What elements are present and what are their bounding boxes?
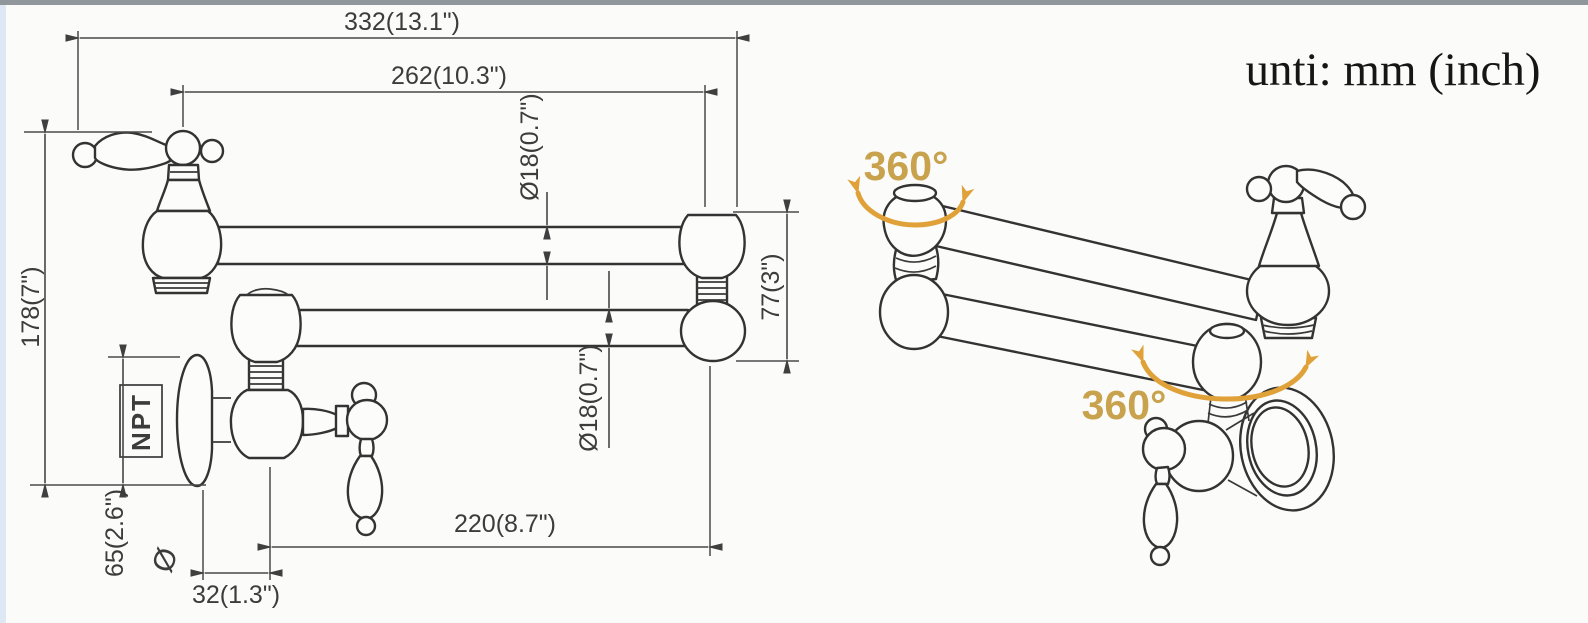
lever-tip — [357, 517, 375, 535]
pot-filler-dimension-diagram: NPT — [0, 0, 1588, 623]
perspective-spout — [1247, 166, 1365, 338]
diagram-canvas: NPT — [0, 0, 1588, 623]
perspective-joint-lower-ball — [880, 275, 948, 349]
dim-overall-length: 332(13.1") — [344, 8, 460, 36]
joint-upper-ball — [679, 215, 744, 278]
upper-arm — [218, 227, 688, 264]
unit-note: unti: mm (inch) — [1245, 44, 1540, 96]
perspective-lower-arm — [927, 293, 1217, 391]
dim-flange-diameter: 65(2.6") — [101, 489, 129, 577]
lever-cone — [303, 409, 337, 435]
perspective-fold-joint — [880, 185, 948, 349]
flange-diameter-symbol: Ø — [146, 544, 185, 577]
rotation-label-upper: 360° — [864, 143, 949, 189]
flange-disc — [177, 355, 212, 486]
flange-pipe — [212, 398, 231, 442]
perspective-view: 360° 360° unti: mm (inch) — [858, 44, 1541, 565]
spout-assembly — [73, 131, 223, 293]
dim-wall-offset: 32(1.3") — [192, 581, 280, 609]
spout-upper-body — [157, 180, 210, 211]
rotation-label-lower: 360° — [1082, 382, 1167, 428]
perspective-lever-pivot — [1143, 428, 1185, 470]
wall-joint-waist — [249, 360, 283, 390]
lower-arm — [296, 310, 688, 346]
spout-aerator — [153, 278, 210, 293]
dim-lower-arm-diameter: Ø18(0.7") — [575, 344, 603, 452]
dim-spout-reach: 220(8.7") — [454, 510, 556, 538]
front-view: NPT — [17, 8, 799, 609]
spout-handle-lever — [95, 133, 170, 170]
control-lever — [303, 383, 387, 535]
valve-body — [231, 390, 303, 458]
scan-left-band — [0, 5, 6, 623]
npt-callout: NPT — [120, 385, 162, 457]
joint-lower-ball — [681, 301, 745, 361]
perspective-spout-body — [1259, 213, 1319, 266]
wall-joint — [231, 289, 303, 458]
dim-overall-height: 178(7") — [17, 266, 45, 347]
perspective-lever-stem — [1156, 467, 1170, 484]
perspective-lever-tip — [1151, 547, 1169, 565]
wall-flange — [177, 355, 231, 486]
dimension-labels: 332(13.1") 262(10.3") 178(7") 77(3") Ø18… — [17, 8, 785, 609]
dimension-lines — [45, 38, 787, 573]
lever-pivot-ball — [347, 400, 387, 440]
perspective-handle-knob-left — [1247, 177, 1271, 201]
scan-top-band — [0, 0, 1588, 5]
handle-pivot-ball — [166, 131, 200, 165]
lever-stem — [360, 439, 374, 456]
lever-teardrop — [348, 456, 382, 519]
fold-joint — [679, 215, 745, 361]
dim-joint-height: 77(3") — [757, 253, 785, 320]
extension-lines — [24, 31, 799, 580]
perspective-swivel-cap — [1210, 324, 1244, 338]
dim-arm-length: 262(10.3") — [391, 62, 507, 90]
wall-joint-ball — [231, 295, 300, 362]
npt-label: NPT — [126, 393, 156, 451]
handle-end-knob — [73, 143, 97, 167]
handle-side-knob — [201, 140, 223, 162]
perspective-handle-knob-right — [1341, 195, 1365, 219]
perspective-lever-teardrop — [1144, 484, 1177, 548]
dim-upper-arm-diameter: Ø18(0.7") — [516, 93, 544, 201]
spout-body-ball — [143, 211, 221, 278]
